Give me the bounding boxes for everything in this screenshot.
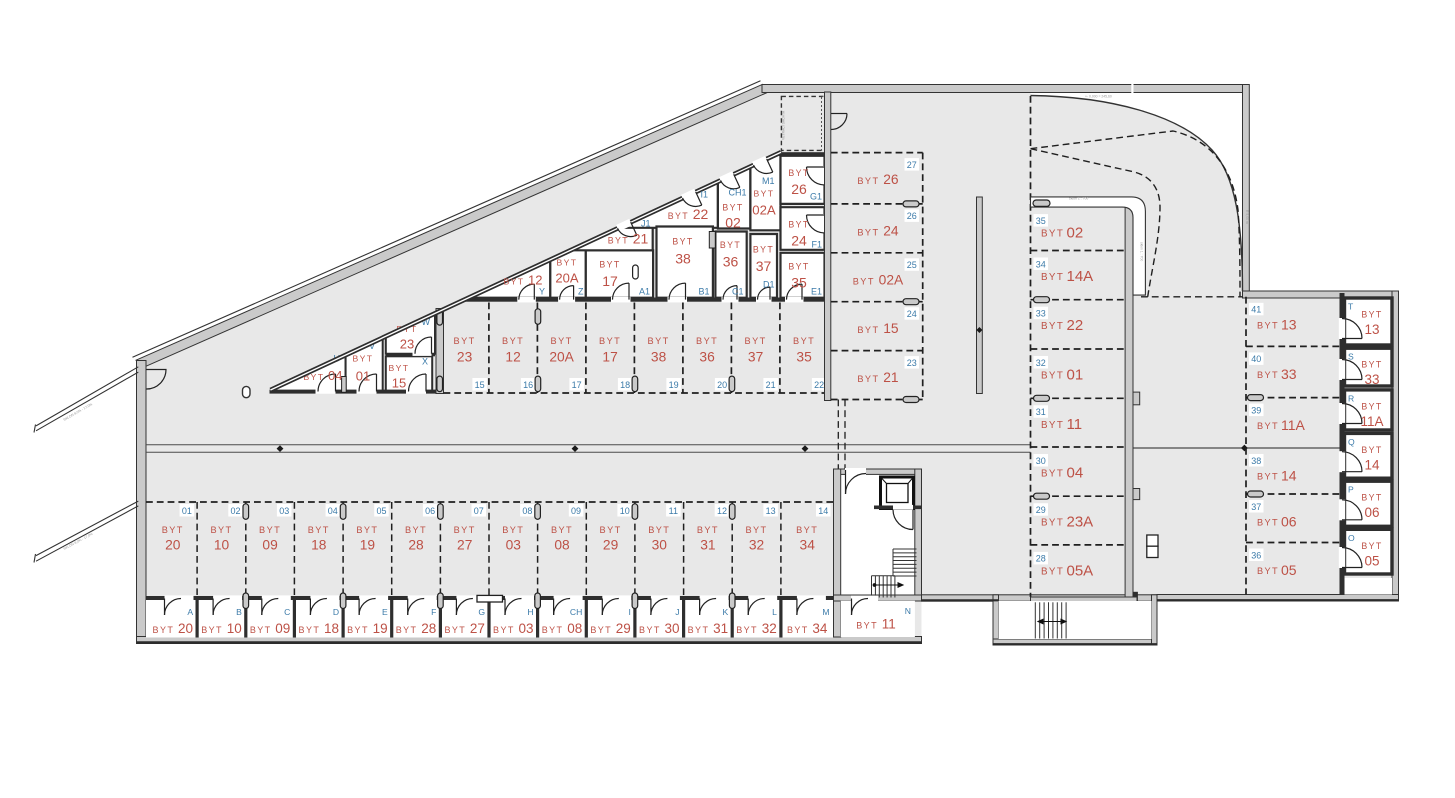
svg-text:BYT: BYT (745, 525, 767, 535)
svg-text:14: 14 (1281, 468, 1297, 484)
svg-text:37: 37 (756, 258, 772, 274)
svg-text:12: 12 (717, 506, 727, 516)
svg-text:BYT: BYT (1257, 421, 1279, 431)
svg-text:20A: 20A (549, 350, 574, 365)
svg-text:CH: CH (570, 607, 582, 617)
svg-text:03: 03 (506, 538, 522, 553)
svg-text:02: 02 (230, 506, 240, 516)
svg-text:10: 10 (620, 506, 630, 516)
svg-text:11: 11 (669, 506, 678, 516)
svg-text:24: 24 (791, 233, 807, 249)
svg-text:J1: J1 (641, 219, 651, 229)
svg-text:BYT: BYT (599, 336, 621, 346)
svg-text:BYT: BYT (599, 260, 620, 270)
svg-text:BYT: BYT (551, 336, 573, 346)
svg-text:32: 32 (749, 538, 764, 553)
svg-text:E1: E1 (811, 287, 822, 297)
svg-text:BYT: BYT (788, 168, 809, 178)
svg-text:16: 16 (523, 380, 533, 390)
svg-text:T: T (1348, 302, 1354, 312)
svg-text:BYT: BYT (356, 525, 378, 535)
svg-text:14A: 14A (1067, 268, 1094, 285)
svg-text:26: 26 (907, 211, 917, 221)
svg-text:31: 31 (700, 538, 715, 553)
svg-text:BYT: BYT (389, 363, 410, 373)
svg-text:10: 10 (214, 538, 230, 553)
svg-text:20: 20 (165, 538, 181, 553)
svg-text:23: 23 (907, 358, 917, 368)
svg-text:SKLON 8,0% - 17,0%: SKLON 8,0% - 17,0% (63, 532, 94, 551)
svg-text:BYT: BYT (1041, 420, 1064, 431)
svg-text:17: 17 (602, 273, 618, 289)
svg-text:BYT: BYT (753, 245, 774, 255)
svg-text:BYT: BYT (745, 336, 767, 346)
svg-text:36: 36 (699, 350, 715, 365)
svg-text:BYT: BYT (793, 336, 815, 346)
svg-text:38: 38 (1251, 456, 1261, 466)
svg-text:BYT: BYT (648, 525, 670, 535)
svg-text:31: 31 (1036, 407, 1046, 417)
svg-text:BYT: BYT (259, 525, 281, 535)
svg-text:A: A (187, 607, 193, 617)
svg-text:19: 19 (669, 380, 679, 390)
svg-text:05: 05 (376, 506, 386, 516)
svg-text:Q: Q (1348, 437, 1355, 447)
svg-text:sklon 1 : 700: sklon 1 : 700 (1140, 242, 1144, 261)
svg-text:21: 21 (766, 380, 776, 390)
svg-text:N: N (905, 606, 911, 616)
svg-text:33: 33 (1281, 366, 1297, 382)
svg-text:18: 18 (311, 538, 327, 553)
svg-text:F1: F1 (811, 240, 822, 250)
svg-text:BYT: BYT (557, 258, 578, 268)
svg-text:28: 28 (408, 538, 424, 553)
svg-text:37: 37 (748, 350, 763, 365)
svg-text:09: 09 (571, 506, 581, 516)
svg-text:BYT: BYT (697, 525, 719, 535)
svg-text:R: R (1348, 393, 1354, 403)
svg-text:01: 01 (182, 506, 192, 516)
svg-text:H: H (527, 607, 533, 617)
svg-text:D1: D1 (763, 280, 775, 290)
svg-text:J: J (675, 607, 679, 617)
svg-text:Z: Z (578, 287, 584, 297)
svg-text:C1: C1 (732, 287, 744, 297)
svg-text:02: 02 (725, 215, 741, 231)
svg-text:02A: 02A (752, 203, 776, 218)
svg-text:sklon 1 : 700: sklon 1 : 700 (1069, 197, 1088, 201)
svg-text:34: 34 (800, 538, 816, 553)
svg-text:K: K (722, 607, 728, 617)
svg-text:15: 15 (392, 376, 406, 391)
svg-text:36: 36 (723, 254, 739, 270)
svg-text:33: 33 (1364, 372, 1379, 387)
svg-text:09: 09 (262, 538, 278, 553)
svg-text:01: 01 (356, 369, 370, 384)
svg-text:23: 23 (457, 350, 473, 365)
svg-text:BYT: BYT (754, 189, 775, 199)
svg-text:05: 05 (1281, 562, 1297, 578)
svg-text:I: I (629, 607, 631, 617)
svg-text:17: 17 (572, 380, 582, 390)
svg-text:41: 41 (1251, 305, 1261, 315)
svg-text:M1: M1 (762, 176, 775, 186)
svg-text:14: 14 (818, 506, 828, 516)
svg-text:BYT: BYT (1361, 310, 1382, 320)
svg-text:23A: 23A (1067, 514, 1094, 531)
svg-text:08: 08 (522, 506, 532, 516)
svg-text:O: O (1348, 533, 1355, 543)
svg-text:BYT: BYT (648, 336, 670, 346)
svg-text:A1: A1 (639, 287, 650, 297)
svg-text:BYT: BYT (600, 525, 622, 535)
svg-text:R 5,00 m: R 5,00 m (1245, 210, 1249, 224)
svg-text:SKLON 8,0% - 17,0%: SKLON 8,0% - 17,0% (63, 402, 94, 422)
svg-text:Y: Y (539, 287, 545, 297)
svg-text:08: 08 (554, 538, 570, 553)
svg-text:BYT: BYT (1041, 321, 1064, 332)
svg-text:BYT: BYT (1041, 229, 1064, 240)
svg-text:13: 13 (1281, 316, 1297, 332)
svg-text:BYT: BYT (502, 336, 524, 346)
svg-text:BYT: BYT (1361, 541, 1382, 551)
svg-text:40: 40 (1251, 354, 1261, 364)
svg-text:BYT: BYT (1041, 469, 1064, 480)
svg-text:36: 36 (1251, 550, 1261, 560)
svg-text:G1: G1 (810, 192, 822, 202)
svg-text:BYT: BYT (1361, 401, 1382, 411)
svg-text:07: 07 (474, 506, 484, 516)
svg-text:CH1: CH1 (728, 188, 746, 198)
svg-text:05A: 05A (1067, 562, 1094, 579)
svg-text:BYT: BYT (405, 525, 427, 535)
svg-text:BYT: BYT (788, 220, 809, 230)
svg-text:G: G (478, 607, 485, 617)
svg-text:BYT: BYT (454, 525, 476, 535)
svg-text:I1: I1 (700, 190, 708, 200)
svg-text:C: C (284, 607, 290, 617)
svg-text:F: F (431, 607, 436, 617)
svg-text:05: 05 (1364, 553, 1379, 568)
svg-text:38: 38 (675, 251, 691, 267)
svg-text:04: 04 (1067, 465, 1084, 482)
svg-text:BYT: BYT (672, 237, 693, 247)
svg-text:35: 35 (1036, 216, 1046, 226)
svg-text:M: M (822, 607, 829, 617)
svg-text:27: 27 (457, 538, 472, 553)
svg-text:X: X (422, 357, 428, 367)
svg-text:BYT: BYT (722, 203, 743, 213)
svg-text:29: 29 (1036, 505, 1046, 515)
svg-text:BYT: BYT (720, 240, 741, 250)
svg-text:24: 24 (907, 309, 917, 319)
svg-text:BYT: BYT (1041, 566, 1064, 577)
svg-text:34: 34 (1036, 259, 1046, 269)
svg-text:30: 30 (652, 538, 668, 553)
svg-text:BYT: BYT (210, 525, 232, 535)
svg-text:L: L (772, 607, 777, 617)
svg-text:BYT: BYT (1041, 518, 1064, 529)
svg-text:BYT: BYT (696, 336, 718, 346)
svg-text:15: 15 (475, 380, 485, 390)
svg-text:32: 32 (1036, 358, 1046, 368)
svg-text:35: 35 (791, 275, 807, 291)
svg-text:BYT: BYT (1041, 371, 1064, 382)
svg-text:11A: 11A (1281, 417, 1306, 433)
svg-text:02: 02 (1067, 225, 1084, 242)
svg-text:04: 04 (328, 506, 338, 516)
svg-text:29: 29 (603, 538, 619, 553)
svg-text:06: 06 (425, 506, 435, 516)
svg-text:37: 37 (1251, 502, 1261, 512)
svg-text:BYT: BYT (1257, 370, 1279, 380)
svg-text:28: 28 (1036, 554, 1046, 564)
svg-text:S: S (1348, 352, 1354, 362)
svg-text:01: 01 (1067, 367, 1084, 384)
svg-text:27: 27 (907, 160, 917, 170)
svg-text:33: 33 (1036, 309, 1046, 319)
svg-text:17: 17 (602, 350, 617, 365)
svg-text:22: 22 (814, 380, 824, 390)
svg-text:13: 13 (766, 506, 776, 516)
svg-text:19: 19 (360, 538, 376, 553)
svg-text:25: 25 (907, 260, 917, 270)
svg-text:26: 26 (791, 181, 807, 197)
svg-text:BYT: BYT (1257, 566, 1279, 576)
svg-text:22: 22 (1067, 317, 1084, 334)
svg-text:BYT: BYT (1041, 272, 1064, 283)
svg-text:BYT: BYT (454, 336, 476, 346)
svg-text:23: 23 (400, 337, 414, 352)
svg-text:BYT: BYT (551, 525, 573, 535)
svg-text:BYT: BYT (502, 525, 524, 535)
svg-text:BYT: BYT (353, 354, 374, 364)
svg-text:BYT: BYT (1257, 518, 1279, 528)
svg-text:VETRACI SACHTA: VETRACI SACHTA (782, 110, 786, 140)
svg-text:B: B (236, 607, 242, 617)
svg-text:BYT: BYT (1361, 445, 1382, 455)
svg-text:12: 12 (505, 350, 520, 365)
svg-text:P: P (1348, 485, 1354, 495)
svg-text:06: 06 (1281, 514, 1297, 530)
svg-text:20: 20 (717, 380, 727, 390)
svg-text:BYT: BYT (1361, 360, 1382, 370)
svg-text:11A: 11A (1360, 414, 1383, 429)
svg-text:38: 38 (651, 350, 667, 365)
svg-text:06: 06 (1364, 505, 1379, 520)
svg-text:BYT: BYT (1257, 320, 1279, 330)
svg-text:BYT: BYT (308, 525, 330, 535)
svg-text:14: 14 (1364, 457, 1380, 472)
svg-text:30: 30 (1036, 456, 1046, 466)
svg-text:BYT: BYT (162, 525, 184, 535)
svg-text:20A: 20A (555, 271, 578, 286)
svg-text:BYT: BYT (788, 262, 809, 272)
svg-text:39: 39 (1251, 405, 1261, 415)
svg-text:13: 13 (1364, 322, 1379, 337)
svg-text:BYT: BYT (1257, 472, 1279, 482)
svg-text:+- 0,000 = 245,60: +- 0,000 = 245,60 (1085, 95, 1112, 99)
svg-text:03: 03 (279, 506, 289, 516)
svg-text:11: 11 (1067, 416, 1083, 433)
svg-text:BYT: BYT (1361, 493, 1382, 503)
svg-text:E: E (382, 607, 388, 617)
svg-text:18: 18 (620, 380, 630, 390)
svg-text:BYT: BYT (796, 525, 818, 535)
svg-text:B1: B1 (698, 287, 709, 297)
svg-text:35: 35 (796, 350, 812, 365)
svg-text:D: D (333, 607, 339, 617)
